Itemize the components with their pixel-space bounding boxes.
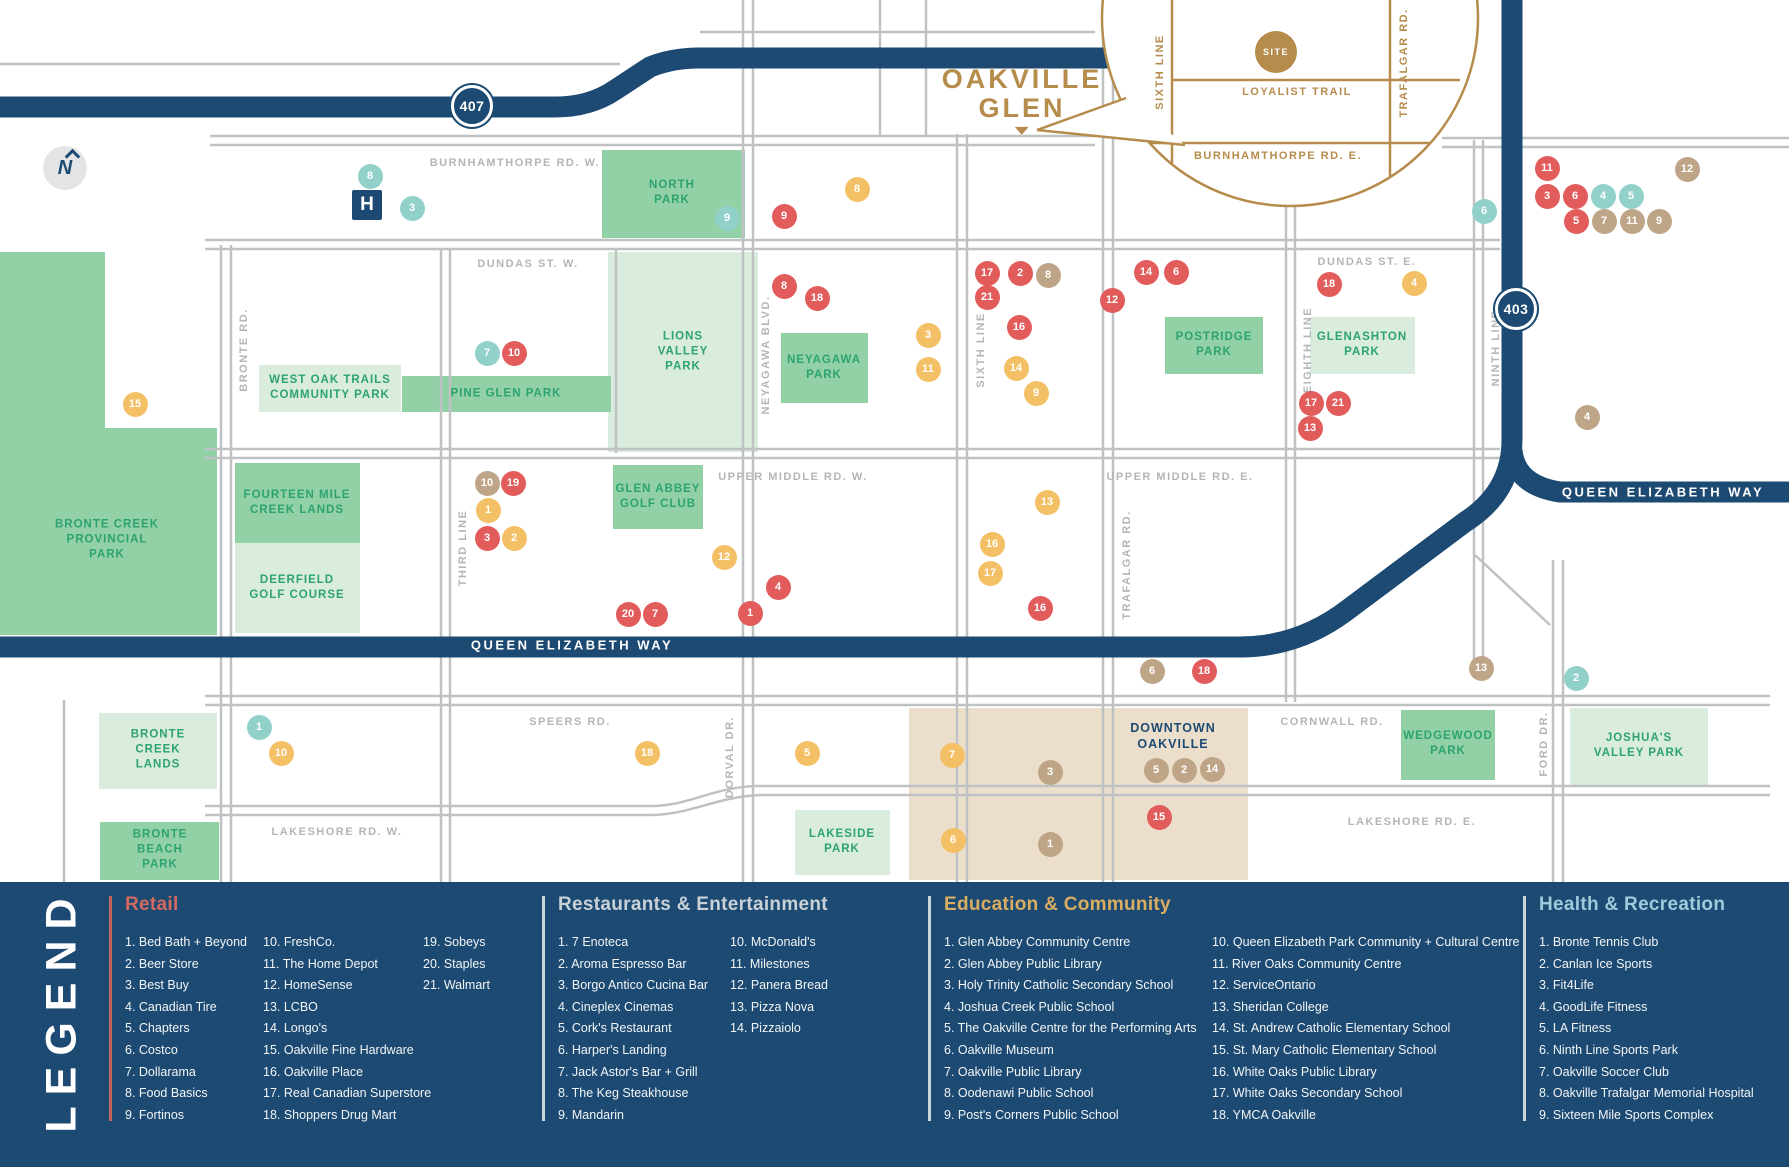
map-marker-restaurants-9: 9 xyxy=(1024,381,1049,406)
map-marker-retail-21: 21 xyxy=(1326,391,1351,416)
map-marker-retail-16: 16 xyxy=(1028,596,1053,621)
map-marker-restaurants-10: 10 xyxy=(269,741,294,766)
map-marker-retail-6: 6 xyxy=(1164,260,1189,285)
map-area: N H SITE OAKVILLE GLEN DOWNTOWN OAKVILLE… xyxy=(0,0,1789,882)
legend-item: 3. Holy Trinity Catholic Secondary Schoo… xyxy=(944,975,1197,997)
legend-item: 10. FreshCo. xyxy=(263,932,431,954)
legend-item: 7. Oakville Public Library xyxy=(944,1062,1197,1084)
legend-item: 16. Oakville Place xyxy=(263,1062,431,1084)
map-marker-retail-20: 20 xyxy=(616,602,641,627)
legend-item: 3. Best Buy xyxy=(125,975,247,997)
legend-item: 11. River Oaks Community Centre xyxy=(1212,954,1519,976)
legend-item-column: 10. McDonald's11. Milestones12. Panera B… xyxy=(730,932,828,1040)
map-marker-retail-14: 14 xyxy=(1134,260,1159,285)
legend-item: 18. Shoppers Drug Mart xyxy=(263,1105,431,1127)
map-marker-retail-3: 3 xyxy=(1535,184,1560,209)
legend-section-heading: Education & Community xyxy=(944,894,1171,916)
map-marker-retail-5: 5 xyxy=(1564,209,1589,234)
map-marker-health-6: 6 xyxy=(1472,199,1497,224)
map-marker-retail-2: 2 xyxy=(1008,261,1033,286)
map-marker-education-4: 4 xyxy=(1575,405,1600,430)
map-marker-restaurants-8: 8 xyxy=(845,177,870,202)
legend-item: 1. Bed Bath + Beyond xyxy=(125,932,247,954)
map-marker-restaurants-17: 17 xyxy=(978,561,1003,586)
map-marker-education-9: 9 xyxy=(1647,209,1672,234)
legend-item-column: 10. Queen Elizabeth Park Community + Cul… xyxy=(1212,932,1519,1126)
legend-item: 9. Fortinos xyxy=(125,1105,247,1127)
legend-item: 10. Queen Elizabeth Park Community + Cul… xyxy=(1212,932,1519,954)
map-marker-health-7: 7 xyxy=(475,341,500,366)
map-marker-restaurants-5: 5 xyxy=(795,741,820,766)
legend-section-heading: Retail xyxy=(125,894,179,916)
legend-section-heading: Restaurants & Entertainment xyxy=(558,894,828,916)
map-marker-education-5: 5 xyxy=(1144,758,1169,783)
map-marker-retail-4: 4 xyxy=(766,575,791,600)
legend-item: 8. Food Basics xyxy=(125,1083,247,1105)
legend-item-column: 1. 7 Enoteca2. Aroma Espresso Bar3. Borg… xyxy=(558,932,708,1126)
legend-item: 14. St. Andrew Catholic Elementary Schoo… xyxy=(1212,1018,1519,1040)
legend-item: 4. Canadian Tire xyxy=(125,997,247,1019)
legend-item: 12. Panera Bread xyxy=(730,975,828,997)
map-marker-health-3: 3 xyxy=(400,196,425,221)
legend-item: 14. Longo's xyxy=(263,1018,431,1040)
legend-item: 12. HomeSense xyxy=(263,975,431,997)
legend-panel: LEGEND Retail1. Bed Bath + Beyond2. Beer… xyxy=(0,882,1789,1167)
legend-item-column: 19. Sobeys20. Staples21. Walmart xyxy=(423,932,490,997)
legend-item: 17. White Oaks Secondary School xyxy=(1212,1083,1519,1105)
legend-item: 2. Aroma Espresso Bar xyxy=(558,954,708,976)
map-marker-restaurants-16: 16 xyxy=(980,532,1005,557)
map-marker-education-2: 2 xyxy=(1172,758,1197,783)
map-marker-restaurants-14: 14 xyxy=(1004,356,1029,381)
map-marker-retail-17: 17 xyxy=(975,261,1000,286)
map-marker-retail-11: 11 xyxy=(1535,156,1560,181)
legend-item: 9. Mandarin xyxy=(558,1105,708,1127)
map-marker-retail-12: 12 xyxy=(1100,288,1125,313)
legend-item: 12. ServiceOntario xyxy=(1212,975,1519,997)
legend-item: 6. Harper's Landing xyxy=(558,1040,708,1062)
legend-item: 2. Canlan Ice Sports xyxy=(1539,954,1754,976)
map-marker-health-1: 1 xyxy=(247,715,272,740)
map-marker-health-4: 4 xyxy=(1591,184,1616,209)
legend-section-rule xyxy=(109,896,112,1121)
map-marker-retail-10: 10 xyxy=(502,341,527,366)
legend-item: 5. LA Fitness xyxy=(1539,1018,1754,1040)
map-marker-education-8: 8 xyxy=(1036,263,1061,288)
legend-item: 16. White Oaks Public Library xyxy=(1212,1062,1519,1084)
map-marker-retail-21: 21 xyxy=(975,285,1000,310)
legend-item: 1. 7 Enoteca xyxy=(558,932,708,954)
legend-item: 4. Joshua Creek Public School xyxy=(944,997,1197,1019)
legend-item: 17. Real Canadian Superstore xyxy=(263,1083,431,1105)
legend-item: 7. Jack Astor's Bar + Grill xyxy=(558,1062,708,1084)
map-marker-education-6: 6 xyxy=(1140,659,1165,684)
legend-title: LEGEND xyxy=(38,887,87,1132)
map-marker-health-5: 5 xyxy=(1619,184,1644,209)
map-marker-education-14: 14 xyxy=(1200,757,1225,782)
legend-item: 5. The Oakville Centre for the Performin… xyxy=(944,1018,1197,1040)
map-marker-education-10: 10 xyxy=(475,471,500,496)
map-marker-retail-17: 17 xyxy=(1299,391,1324,416)
map-marker-health-8: 8 xyxy=(358,164,383,189)
map-marker-restaurants-18: 18 xyxy=(635,741,660,766)
map-marker-retail-6: 6 xyxy=(1563,184,1588,209)
map-marker-health-9: 9 xyxy=(715,206,740,231)
map-marker-retail-18: 18 xyxy=(805,286,830,311)
legend-item: 15. Oakville Fine Hardware xyxy=(263,1040,431,1062)
legend-section-heading: Health & Recreation xyxy=(1539,894,1725,916)
legend-item: 9. Post's Corners Public School xyxy=(944,1105,1197,1127)
legend-item: 21. Walmart xyxy=(423,975,490,997)
legend-item: 13. Sheridan College xyxy=(1212,997,1519,1019)
legend-item: 8. Oodenawi Public School xyxy=(944,1083,1197,1105)
map-marker-restaurants-11: 11 xyxy=(916,357,941,382)
legend-item: 3. Fit4Life xyxy=(1539,975,1754,997)
map-marker-restaurants-4: 4 xyxy=(1402,271,1427,296)
map-marker-restaurants-15: 15 xyxy=(123,392,148,417)
legend-item: 7. Dollarama xyxy=(125,1062,247,1084)
legend-item: 7. Oakville Soccer Club xyxy=(1539,1062,1754,1084)
legend-item: 6. Ninth Line Sports Park xyxy=(1539,1040,1754,1062)
map-marker-retail-3: 3 xyxy=(475,526,500,551)
map-marker-retail-19: 19 xyxy=(501,471,526,496)
oakville-glen-amenities-map: N H SITE OAKVILLE GLEN DOWNTOWN OAKVILLE… xyxy=(0,0,1789,1167)
legend-section-rule xyxy=(1523,896,1526,1121)
map-marker-retail-13: 13 xyxy=(1298,416,1323,441)
map-marker-education-11: 11 xyxy=(1620,209,1645,234)
legend-section-rule xyxy=(542,896,545,1121)
map-marker-retail-9: 9 xyxy=(772,204,797,229)
map-marker-health-2: 2 xyxy=(1564,666,1589,691)
map-marker-retail-15: 15 xyxy=(1147,805,1172,830)
legend-item: 10. McDonald's xyxy=(730,932,828,954)
map-marker-restaurants-1: 1 xyxy=(476,498,501,523)
legend-item: 2. Beer Store xyxy=(125,954,247,976)
map-marker-retail-1: 1 xyxy=(738,601,763,626)
legend-item: 1. Bronte Tennis Club xyxy=(1539,932,1754,954)
legend-item: 4. Cineplex Cinemas xyxy=(558,997,708,1019)
legend-item: 11. Milestones xyxy=(730,954,828,976)
legend-item-column: 10. FreshCo.11. The Home Depot12. HomeSe… xyxy=(263,932,431,1126)
legend-item: 8. Oakville Trafalgar Memorial Hospital xyxy=(1539,1083,1754,1105)
legend-item: 5. Chapters xyxy=(125,1018,247,1040)
map-marker-restaurants-13: 13 xyxy=(1035,490,1060,515)
map-marker-education-13: 13 xyxy=(1469,656,1494,681)
legend-item: 1. Glen Abbey Community Centre xyxy=(944,932,1197,954)
map-marker-education-7: 7 xyxy=(1592,209,1617,234)
map-marker-restaurants-7: 7 xyxy=(940,743,965,768)
legend-item: 13. LCBO xyxy=(263,997,431,1019)
map-marker-retail-18: 18 xyxy=(1317,272,1342,297)
map-marker-retail-18: 18 xyxy=(1192,659,1217,684)
legend-item: 4. GoodLife Fitness xyxy=(1539,997,1754,1019)
legend-item-column: 1. Bronte Tennis Club2. Canlan Ice Sport… xyxy=(1539,932,1754,1126)
map-marker-retail-8: 8 xyxy=(772,274,797,299)
legend-item-column: 1. Bed Bath + Beyond2. Beer Store3. Best… xyxy=(125,932,247,1126)
legend-item: 3. Borgo Antico Cucina Bar xyxy=(558,975,708,997)
map-marker-education-12: 12 xyxy=(1675,157,1700,182)
legend-item-column: 1. Glen Abbey Community Centre2. Glen Ab… xyxy=(944,932,1197,1126)
legend-item: 13. Pizza Nova xyxy=(730,997,828,1019)
legend-item: 6. Oakville Museum xyxy=(944,1040,1197,1062)
map-marker-education-1: 1 xyxy=(1038,832,1063,857)
map-marker-restaurants-2: 2 xyxy=(502,526,527,551)
legend-item: 18. YMCA Oakville xyxy=(1212,1105,1519,1127)
legend-item: 2. Glen Abbey Public Library xyxy=(944,954,1197,976)
legend-item: 9. Sixteen Mile Sports Complex xyxy=(1539,1105,1754,1127)
legend-section-rule xyxy=(928,896,931,1121)
legend-item: 15. St. Mary Catholic Elementary School xyxy=(1212,1040,1519,1062)
legend-item: 6. Costco xyxy=(125,1040,247,1062)
legend-item: 19. Sobeys xyxy=(423,932,490,954)
map-markers-layer: 8397645129818172211612146181136510193412… xyxy=(0,0,1789,882)
legend-item: 8. The Keg Steakhouse xyxy=(558,1083,708,1105)
legend-item: 20. Staples xyxy=(423,954,490,976)
map-marker-education-3: 3 xyxy=(1038,760,1063,785)
legend-item: 5. Cork's Restaurant xyxy=(558,1018,708,1040)
map-marker-retail-16: 16 xyxy=(1007,315,1032,340)
legend-item: 14. Pizzaiolo xyxy=(730,1018,828,1040)
map-marker-retail-7: 7 xyxy=(643,602,668,627)
map-marker-restaurants-6: 6 xyxy=(941,828,966,853)
legend-item: 11. The Home Depot xyxy=(263,954,431,976)
map-marker-restaurants-12: 12 xyxy=(712,545,737,570)
map-marker-restaurants-3: 3 xyxy=(916,323,941,348)
